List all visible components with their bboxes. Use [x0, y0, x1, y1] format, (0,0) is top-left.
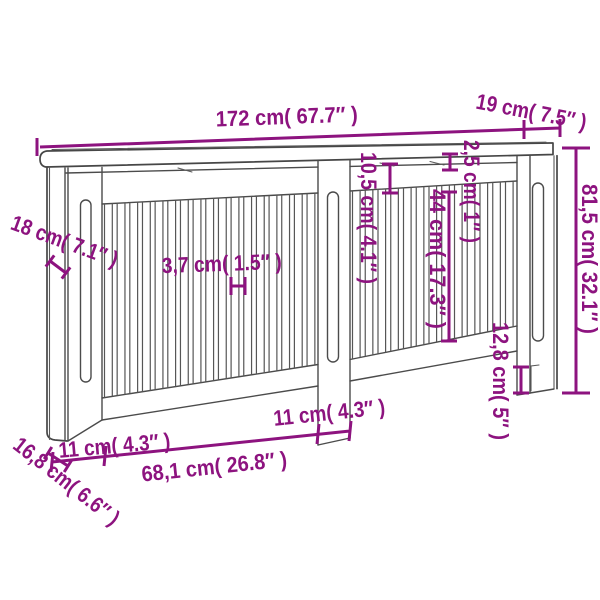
- dim-total-width-label: 172 cm( 67.7″ ): [215, 102, 358, 132]
- right-panel-bottom-edge: [530, 389, 554, 393]
- dimension-diagram-canvas: 172 cm( 67.7″ ) 19 cm( 7.5″ ) 81,5 cm( 3…: [0, 0, 600, 600]
- radiator-cover-dimension-diagram: 172 cm( 67.7″ ) 19 cm( 7.5″ ) 81,5 cm( 3…: [0, 0, 600, 600]
- left-panel-slot: [81, 200, 92, 382]
- dim-slat-width-label: 3,7 cm( 1.5″ ): [161, 249, 282, 278]
- dim-foot-height-bracket: [513, 367, 529, 393]
- dim-total-height-label: 81,5 cm( 32.1″ ): [577, 184, 600, 334]
- dim-foot-height: 12,8 cm( 5″ ): [488, 322, 529, 440]
- slat-top-edge-bay-1: [102, 193, 318, 204]
- dim-top-thickness-label: 2,5 cm( 1″ ): [459, 140, 484, 243]
- right-foot-cutout: [531, 365, 539, 391]
- middle-stile-foot-bottom: [318, 438, 350, 445]
- dim-top-rail-height: 10,5 cm( 4.1″ ): [356, 152, 398, 284]
- dim-slat-length-label: 44 cm( 17.3″ ): [425, 189, 450, 329]
- dim-total-height: 81,5 cm( 32.1″ ): [562, 148, 600, 393]
- right-side-panel: [517, 156, 557, 395]
- right-panel-slot: [533, 183, 544, 341]
- dim-slat-length: 44 cm( 17.3″ ): [425, 189, 457, 341]
- left-side-panel: [47, 167, 102, 441]
- dim-slat-width-bracket: [231, 277, 245, 295]
- dim-middle-stile-label: 11 cm( 4.3″ ): [272, 394, 386, 431]
- dim-left-stile-label: 11 cm( 4.3″ ): [57, 428, 171, 463]
- dim-top-rail-label: 10,5 cm( 4.1″ ): [356, 152, 381, 284]
- bottom-rail-top-bay-1: [102, 365, 318, 399]
- middle-stile-slot: [328, 192, 339, 362]
- dim-foot-height-label: 12,8 cm( 5″ ): [488, 322, 513, 440]
- slats-bay-1: [105, 193, 315, 397]
